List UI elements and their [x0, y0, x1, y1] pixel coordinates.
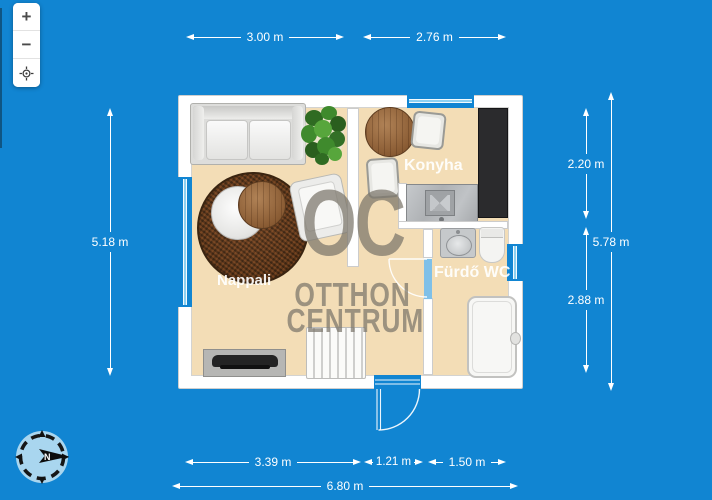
locate-button[interactable] [13, 59, 40, 87]
interior-wall-living-kitchen [347, 108, 359, 267]
zoom-out-button[interactable]: − [13, 31, 40, 59]
bathroom-sink [440, 228, 476, 258]
dimension-left-height: 5.18 m [90, 108, 130, 376]
room-label-bathroom: Fürdő WC [434, 264, 510, 282]
dimension-right-total: 5.78 m [591, 92, 631, 391]
entrance-door-opening [374, 375, 421, 389]
window-top-wall [407, 93, 474, 108]
room-label-kitchen: Konyha [404, 157, 463, 175]
dining-table [365, 107, 415, 157]
kitchen-sink [425, 190, 455, 216]
kitchen-counter [406, 184, 478, 224]
zoom-toolbar: + − [13, 3, 40, 87]
compass-icon: N [13, 428, 71, 486]
window-left-wall [178, 177, 192, 307]
zoom-in-button[interactable]: + [13, 3, 40, 31]
crosshair-locate-icon [19, 66, 34, 81]
dimension-bottom-left: 3.39 m [185, 455, 361, 469]
bathroom-door [424, 258, 432, 300]
minus-icon: − [22, 35, 32, 55]
entrance-door-leaf [377, 389, 381, 430]
compass[interactable]: N [13, 428, 71, 486]
shower-knob [510, 332, 521, 345]
tv-stand [203, 349, 286, 377]
interior-wall-bathroom-upper [423, 229, 433, 258]
toilet [479, 227, 505, 263]
room-label-living: Nappali [217, 272, 271, 289]
floorplan-viewer: + − [0, 0, 712, 500]
radiator [306, 327, 366, 379]
potted-plant [298, 104, 348, 168]
compass-north-label: N [44, 452, 51, 462]
screen-edge-artifact [0, 8, 2, 148]
shower-tray [467, 296, 517, 378]
dimension-bottom-right: 1.50 m [428, 455, 506, 469]
bathroom-faucet [456, 230, 460, 234]
chair-bottom [366, 157, 401, 199]
sofa [190, 103, 306, 165]
coffee-table-round-wood [238, 181, 286, 229]
chair-right [410, 110, 447, 150]
dimension-bottom-door: 1.21 m [364, 455, 423, 469]
interior-wall-bathroom-lower [423, 298, 433, 375]
dimension-bottom-total: 6.80 m [172, 479, 518, 493]
entrance-door-arc [379, 389, 420, 430]
dimension-top-kitchen: 2.76 m [363, 30, 506, 44]
plus-icon: + [22, 7, 32, 27]
kitchen-cabinet [478, 108, 508, 218]
dimension-top-living: 3.00 m [186, 30, 344, 44]
